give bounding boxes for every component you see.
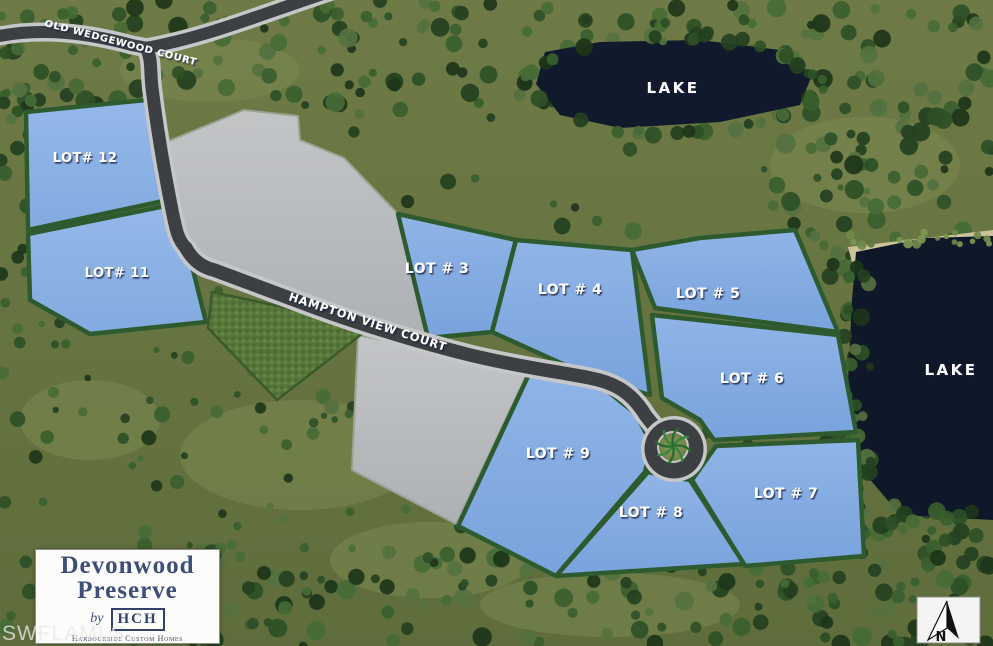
lot-5-label: LOT # 5 [676, 286, 741, 302]
mls-watermark: SWFLAMLS [2, 622, 126, 646]
north-arrow: N [917, 597, 980, 645]
north-lake-label: LAKE [646, 79, 699, 97]
east-lake-label: LAKE [924, 361, 977, 379]
community-name-line2: Preserve [77, 578, 178, 603]
lot-4-label: LOT # 4 [538, 282, 603, 298]
cul-de-sac [641, 416, 707, 482]
lot-6-label: LOT # 6 [720, 371, 785, 387]
north-arrow-label: N [936, 630, 947, 645]
lot-7-label: LOT # 7 [754, 486, 819, 502]
site-plan-image: LOT# 12 LOT# 11 LOT # 3 LOT # 4 LOT # 5 … [0, 0, 993, 646]
community-name-line1: Devonwood [60, 553, 194, 578]
lot-12-label: LOT# 12 [53, 151, 118, 166]
lot-9-label: LOT # 9 [526, 446, 591, 462]
lot-11-label: LOT# 11 [85, 266, 150, 281]
lot-8-label: LOT # 8 [619, 505, 684, 521]
lot-3-label: LOT # 3 [405, 261, 470, 277]
